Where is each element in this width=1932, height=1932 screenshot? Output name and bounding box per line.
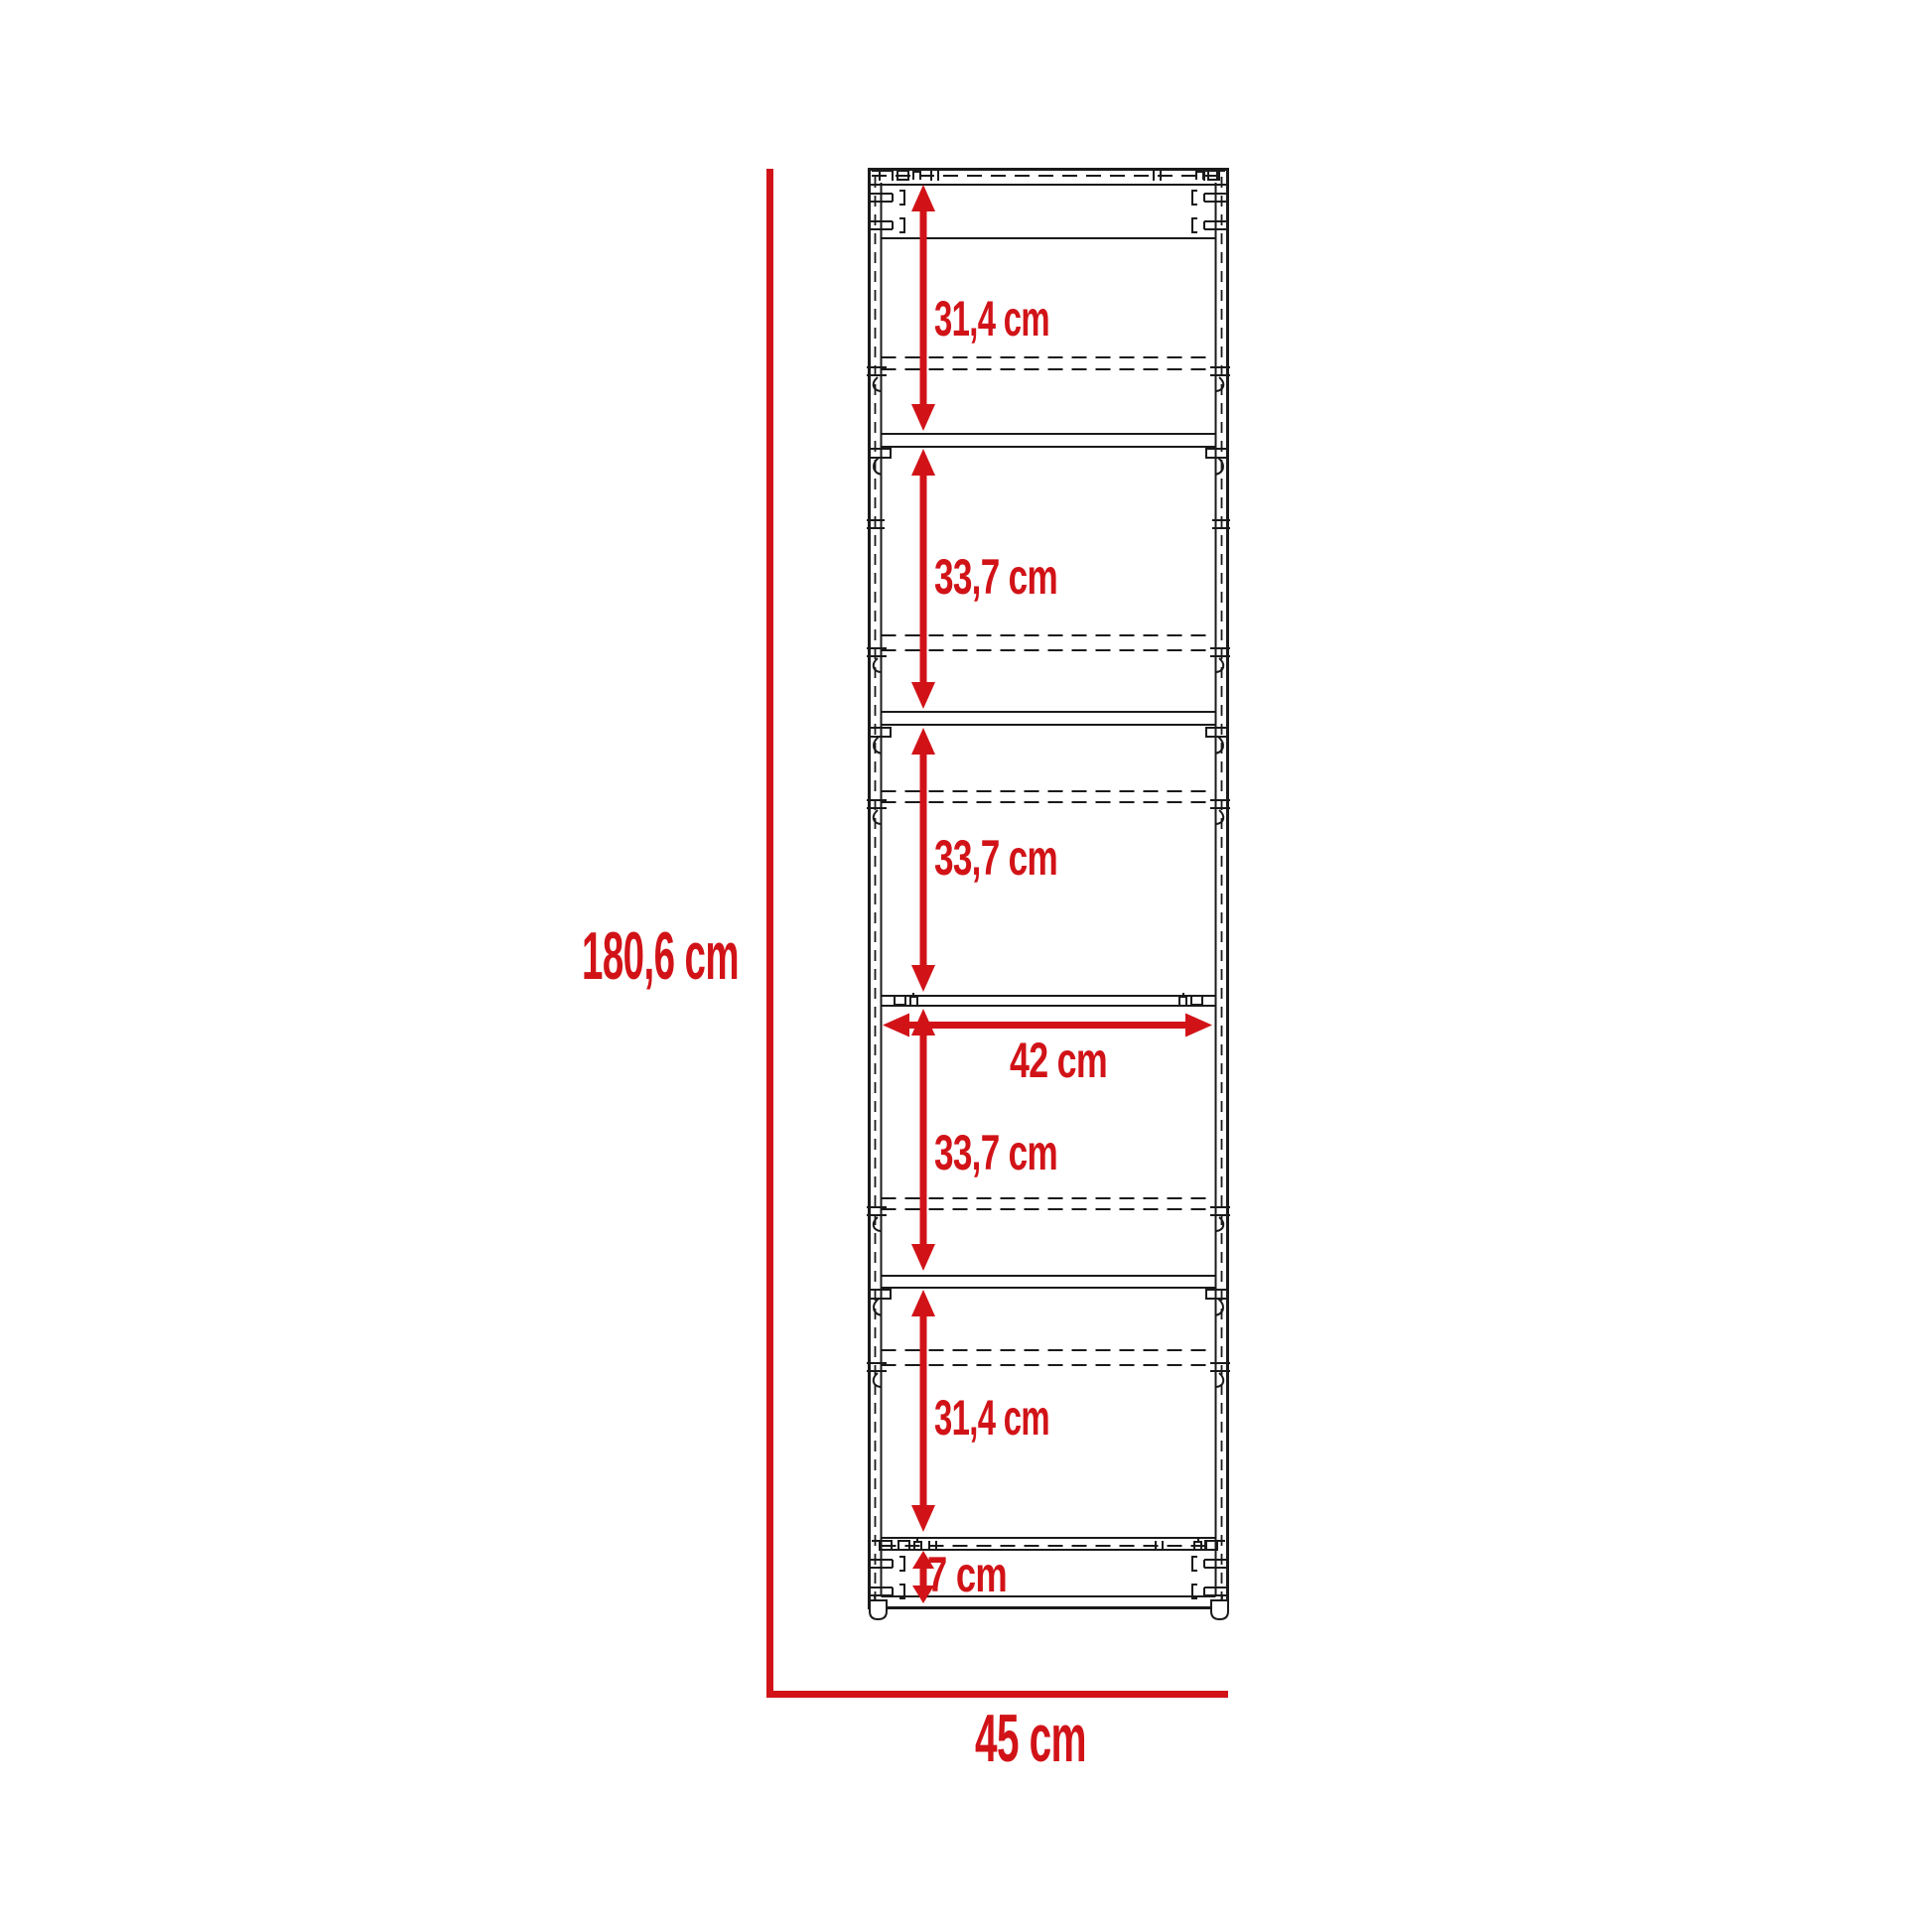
dashed-shelf-position-5: [882, 1350, 1216, 1365]
dashed-shelf-position-1: [882, 357, 1216, 369]
shelf-3: [882, 996, 1216, 1006]
dimension-label-interior-width: 42 cm: [1010, 1033, 1107, 1088]
dimension-arrow-section-5: 31,4 cm: [911, 1290, 1049, 1532]
dimension-label-section-2: 33,7 cm: [934, 549, 1057, 605]
bracket-icon: [869, 218, 904, 232]
dimension-arrow-plinth: 7 cm: [912, 1547, 1007, 1603]
foot-right-icon: [1211, 1600, 1228, 1619]
cabinet-dimension-diagram: 180,6 cm 45 cm 31,4 cm 33,7 cm 33,7 cm 4…: [0, 0, 1932, 1932]
bracket-icon: [869, 1557, 904, 1571]
dimension-arrow-section-1: 31,4 cm: [911, 185, 1049, 431]
arrow-head-up: [911, 728, 935, 755]
overall-dimension-lines: 180,6 cm 45 cm: [582, 169, 1228, 1776]
foot-left-icon: [870, 1600, 887, 1619]
dashed-shelf-position-3: [882, 791, 1216, 802]
arrow-head-up: [911, 185, 935, 211]
overall-dimension-bracket: [770, 169, 1229, 1695]
shelf-support-icon: [1206, 1290, 1228, 1315]
arrow-head-left: [883, 1014, 909, 1037]
shelf-support-icon: [869, 728, 891, 754]
dimension-arrow-interior-width: 42 cm: [883, 1014, 1212, 1089]
dimension-arrow-section-3: 33,7 cm: [911, 728, 1057, 992]
dimension-label-section-1: 31,4 cm: [934, 291, 1049, 346]
bracket-icon: [869, 191, 904, 205]
arrow-head-up: [911, 449, 935, 476]
dashed-shelf-position-4: [882, 1198, 1216, 1209]
shelf-support-icon: [869, 1290, 891, 1315]
bracket-icon: [1192, 218, 1228, 232]
arrow-head-down: [911, 682, 935, 709]
dimension-label-section-5: 31,4 cm: [934, 1390, 1049, 1446]
arrow-head-down: [911, 1505, 935, 1532]
shelf-1: [882, 434, 1216, 447]
shelf-4: [882, 1276, 1216, 1288]
dimension-label-plinth: 7 cm: [927, 1547, 1007, 1602]
arrow-head-down: [911, 404, 935, 431]
shelf-2: [882, 712, 1216, 725]
shelf-support-icon: [1206, 728, 1228, 754]
dimension-label-section-4: 33,7 cm: [934, 1125, 1057, 1180]
dimension-diagram-page: 180,6 cm 45 cm 31,4 cm 33,7 cm 33,7 cm 4…: [0, 0, 1932, 1932]
bracket-icon: [1192, 191, 1228, 205]
arrow-head-down: [911, 965, 935, 992]
arrow-head-down: [911, 1244, 935, 1271]
dimension-arrow-section-2: 33,7 cm: [911, 449, 1057, 709]
arrow-head-up: [911, 1290, 935, 1316]
cam-lock-icon: [898, 1538, 921, 1550]
bracket-icon: [1192, 1557, 1228, 1571]
shelf-support-icon: [869, 449, 891, 475]
cam-lock-icon: [895, 993, 917, 1005]
cam-lock-icon: [1179, 993, 1202, 1005]
dimension-label-section-3: 33,7 cm: [934, 830, 1057, 886]
dashed-shelf-position-2: [882, 635, 1216, 650]
arrow-head-right: [1185, 1014, 1212, 1037]
overall-width-label: 45 cm: [975, 1701, 1086, 1776]
overall-height-label: 180,6 cm: [582, 918, 739, 994]
shelf-support-icon: [1206, 449, 1228, 475]
